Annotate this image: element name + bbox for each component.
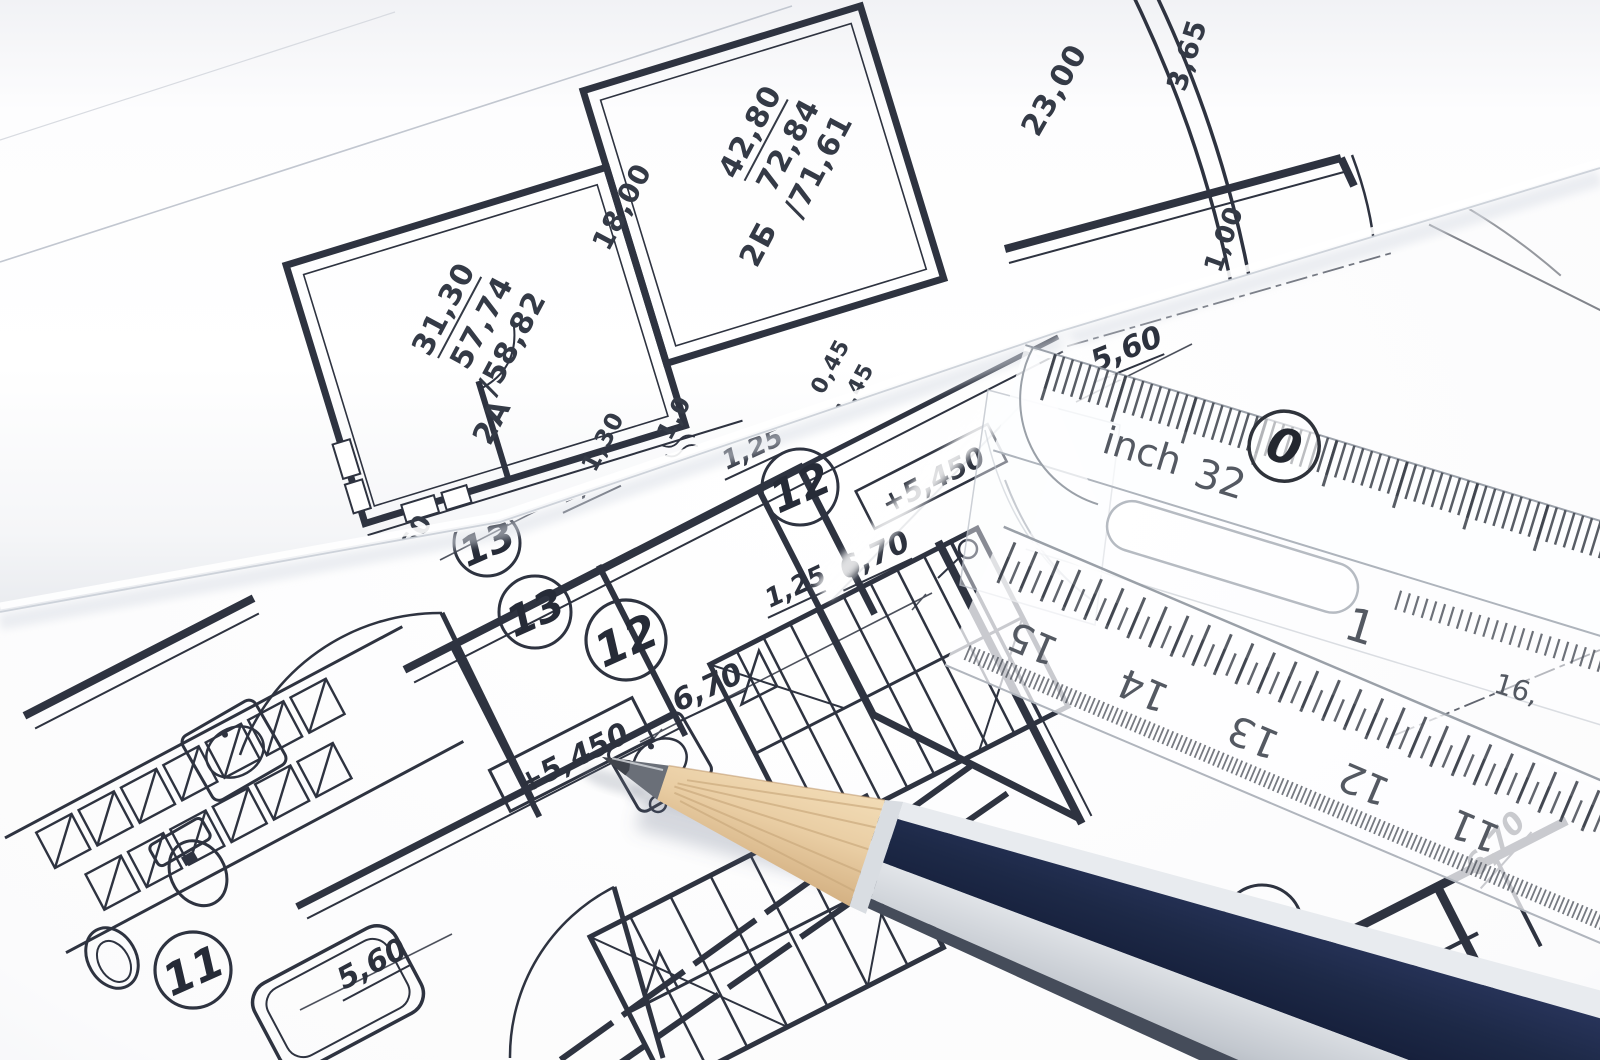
scene-svg: 13 13 12 12 11 1,25 1,25 1,25 (0, 0, 1600, 1060)
blueprint-photo: 13 13 12 12 11 1,25 1,25 1,25 (0, 0, 1600, 1060)
room-circle-12b: 12 (762, 449, 839, 525)
room-circle-13b: 13 (499, 576, 572, 648)
room-circle-11: 11 (155, 932, 232, 1008)
room-circle-12a: 12 (586, 600, 666, 680)
